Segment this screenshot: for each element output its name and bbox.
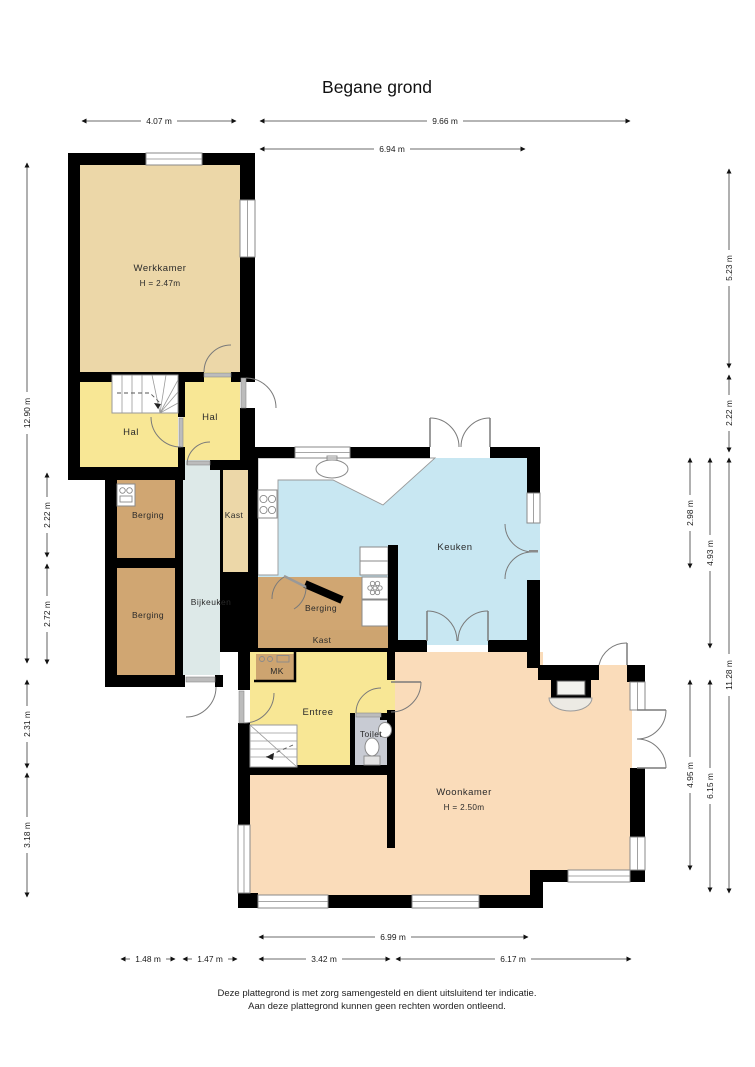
wall xyxy=(530,870,543,908)
window xyxy=(568,870,630,882)
wall xyxy=(380,713,395,720)
dim-label: 9.66 m xyxy=(432,116,458,126)
wall xyxy=(527,450,540,493)
label-entree: Entree xyxy=(303,707,334,718)
wall xyxy=(627,665,645,682)
ventilation-unit xyxy=(362,577,388,599)
dimension: 6.17 m xyxy=(396,954,631,964)
window xyxy=(240,200,255,257)
room-berging-2 xyxy=(117,568,175,675)
label-mk: MK xyxy=(270,666,284,676)
wall xyxy=(350,713,355,772)
window xyxy=(630,682,645,710)
dim-label: 3.42 m xyxy=(311,954,337,964)
dim-label: 4.93 m xyxy=(705,540,715,566)
wall xyxy=(388,545,398,645)
wall xyxy=(68,165,80,480)
fireplace xyxy=(549,677,592,711)
dimension: 2.22 m xyxy=(724,375,734,452)
dim-label: 2.72 m xyxy=(42,601,52,627)
wall xyxy=(117,558,175,568)
dimension: 2.98 m xyxy=(685,458,695,568)
dim-label: 3.18 m xyxy=(22,822,32,848)
dimension: 1.48 m xyxy=(121,954,175,964)
wall xyxy=(238,723,250,825)
toilet-fixture xyxy=(364,738,380,765)
room-bijkeuken xyxy=(183,460,220,675)
room-kast-1 xyxy=(222,470,248,572)
label-berging-2: Berging xyxy=(132,610,164,620)
dim-label: 12.90 m xyxy=(22,398,32,428)
door-bay-exterior xyxy=(599,643,627,665)
dimension: 6.94 m xyxy=(260,144,525,154)
wall xyxy=(240,257,255,372)
wall xyxy=(248,447,295,458)
dim-label: 2.22 m xyxy=(42,502,52,528)
dimension: 2.72 m xyxy=(42,564,52,664)
wall xyxy=(220,572,258,652)
counter-cabinet xyxy=(360,561,388,575)
label-bijkeuken: Bijkeuken xyxy=(191,597,231,607)
label-werkkamer-height: H = 2.47m xyxy=(140,279,181,288)
wall xyxy=(215,675,223,687)
label-woonkamer: Woonkamer xyxy=(436,787,492,798)
label-kast-2: Kast xyxy=(313,635,332,645)
wall xyxy=(543,870,568,882)
dim-label: 2.31 m xyxy=(22,711,32,737)
dimension: 2.22 m xyxy=(42,473,52,557)
wall xyxy=(350,447,430,458)
wall-stub xyxy=(387,772,395,848)
label-berging-3: Berging xyxy=(305,603,337,613)
wall xyxy=(240,153,255,200)
dimension: 4.93 m xyxy=(705,458,715,648)
wall xyxy=(328,895,412,908)
dimension: 1.47 m xyxy=(183,954,237,964)
stairs-entree xyxy=(250,725,297,767)
label-werkkamer: Werkkamer xyxy=(134,263,187,274)
label-keuken: Keuken xyxy=(437,542,472,553)
label-kast-1: Kast xyxy=(225,510,244,520)
door-post xyxy=(529,550,538,553)
dim-label: 6.17 m xyxy=(500,954,526,964)
dimension: 4.07 m xyxy=(82,116,236,126)
dim-label: 1.48 m xyxy=(135,954,161,964)
dim-label: 2.98 m xyxy=(685,500,695,526)
wall xyxy=(248,458,258,577)
wall xyxy=(488,640,540,652)
wall xyxy=(105,480,117,675)
door-hal-exterior xyxy=(241,378,276,408)
page-title: Begane grond xyxy=(322,77,432,97)
wall xyxy=(178,447,185,467)
wall xyxy=(527,580,540,668)
room-fills xyxy=(80,165,632,895)
dimension: 3.42 m xyxy=(259,954,390,964)
dim-label: 4.95 m xyxy=(685,762,695,788)
label-berging-1: Berging xyxy=(132,510,164,520)
window xyxy=(238,825,250,893)
wall xyxy=(240,372,255,378)
window xyxy=(258,895,328,908)
wall xyxy=(105,675,185,687)
disclaimer-line-1: Deze plattegrond is met zorg samengestel… xyxy=(218,988,537,999)
label-toilet: Toilet xyxy=(360,729,382,739)
disclaimer: Deze plattegrond is met zorg samengestel… xyxy=(218,988,537,1012)
boiler xyxy=(117,484,135,506)
wall xyxy=(220,463,223,573)
dim-label: 2.22 m xyxy=(724,400,734,426)
door-keuken-garden-double xyxy=(430,418,490,447)
window xyxy=(295,447,350,458)
dim-label: 5.23 m xyxy=(724,255,734,281)
wall xyxy=(387,652,395,680)
dimension: 6.99 m xyxy=(259,932,528,942)
dim-label: 1.47 m xyxy=(197,954,223,964)
wall xyxy=(250,648,395,652)
disclaimer-line-2: Aan deze plattegrond kunnen geen rechten… xyxy=(248,1001,506,1012)
wall xyxy=(68,467,185,480)
dimension: 9.66 m xyxy=(260,116,630,126)
dimension: 5.23 m xyxy=(724,169,734,368)
dimension: 12.90 m xyxy=(22,163,32,663)
dim-label: 6.94 m xyxy=(379,144,405,154)
window xyxy=(630,837,645,870)
wall xyxy=(238,893,258,908)
dim-label: 4.07 m xyxy=(146,116,172,126)
wall xyxy=(630,870,645,882)
counter-cabinet xyxy=(360,547,388,561)
dim-label: 6.99 m xyxy=(380,932,406,942)
label-hal-left: Hal xyxy=(123,427,139,438)
dim-label: 6.15 m xyxy=(705,773,715,799)
wall xyxy=(175,467,183,675)
dim-label: 11.28 m xyxy=(724,660,734,690)
wall xyxy=(630,768,645,837)
window xyxy=(527,493,540,523)
dimension: 6.15 m xyxy=(705,680,715,892)
label-hal-right: Hal xyxy=(202,412,218,423)
floor-plan-canvas: Begane grond xyxy=(0,0,755,1067)
window xyxy=(412,895,479,908)
floor-plan-page: Begane grond xyxy=(0,0,755,1067)
washer-appliance xyxy=(362,600,388,626)
door-woonkamer-french xyxy=(637,710,666,768)
stairs-hal xyxy=(112,375,178,413)
wall xyxy=(178,372,185,417)
stove xyxy=(258,490,277,518)
wall xyxy=(238,652,250,690)
dimension: 4.95 m xyxy=(685,680,695,870)
wall xyxy=(68,153,146,165)
dimension: 11.28 m xyxy=(724,458,734,893)
label-woonkamer-height: H = 2.50m xyxy=(444,803,485,812)
dimension: 3.18 m xyxy=(22,773,32,897)
door-bijkeuken-exterior xyxy=(186,677,216,717)
dimension: 2.31 m xyxy=(22,680,32,768)
window xyxy=(146,153,202,165)
